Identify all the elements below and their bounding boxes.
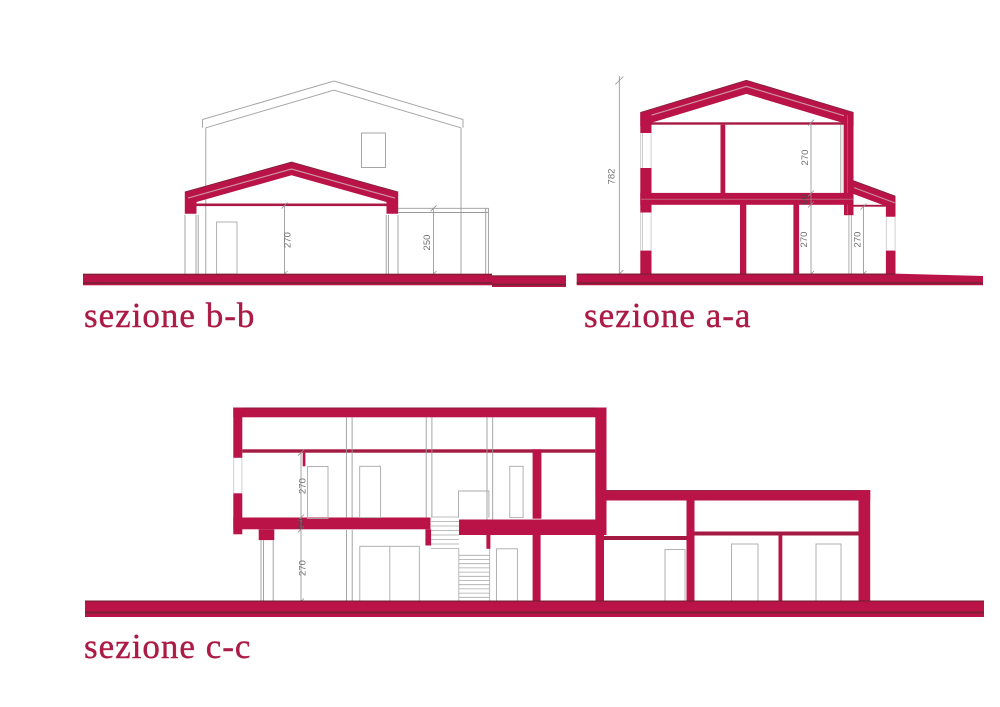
svg-text:250: 250 <box>422 235 433 251</box>
svg-text:270: 270 <box>298 560 309 576</box>
svg-text:270: 270 <box>852 232 863 248</box>
svg-text:270: 270 <box>800 150 811 166</box>
svg-text:270: 270 <box>283 232 294 248</box>
svg-text:60: 60 <box>799 194 810 205</box>
svg-text:60: 60 <box>296 519 307 530</box>
svg-text:782: 782 <box>607 169 618 185</box>
svg-text:270: 270 <box>298 478 309 494</box>
svg-text:270: 270 <box>799 232 810 248</box>
